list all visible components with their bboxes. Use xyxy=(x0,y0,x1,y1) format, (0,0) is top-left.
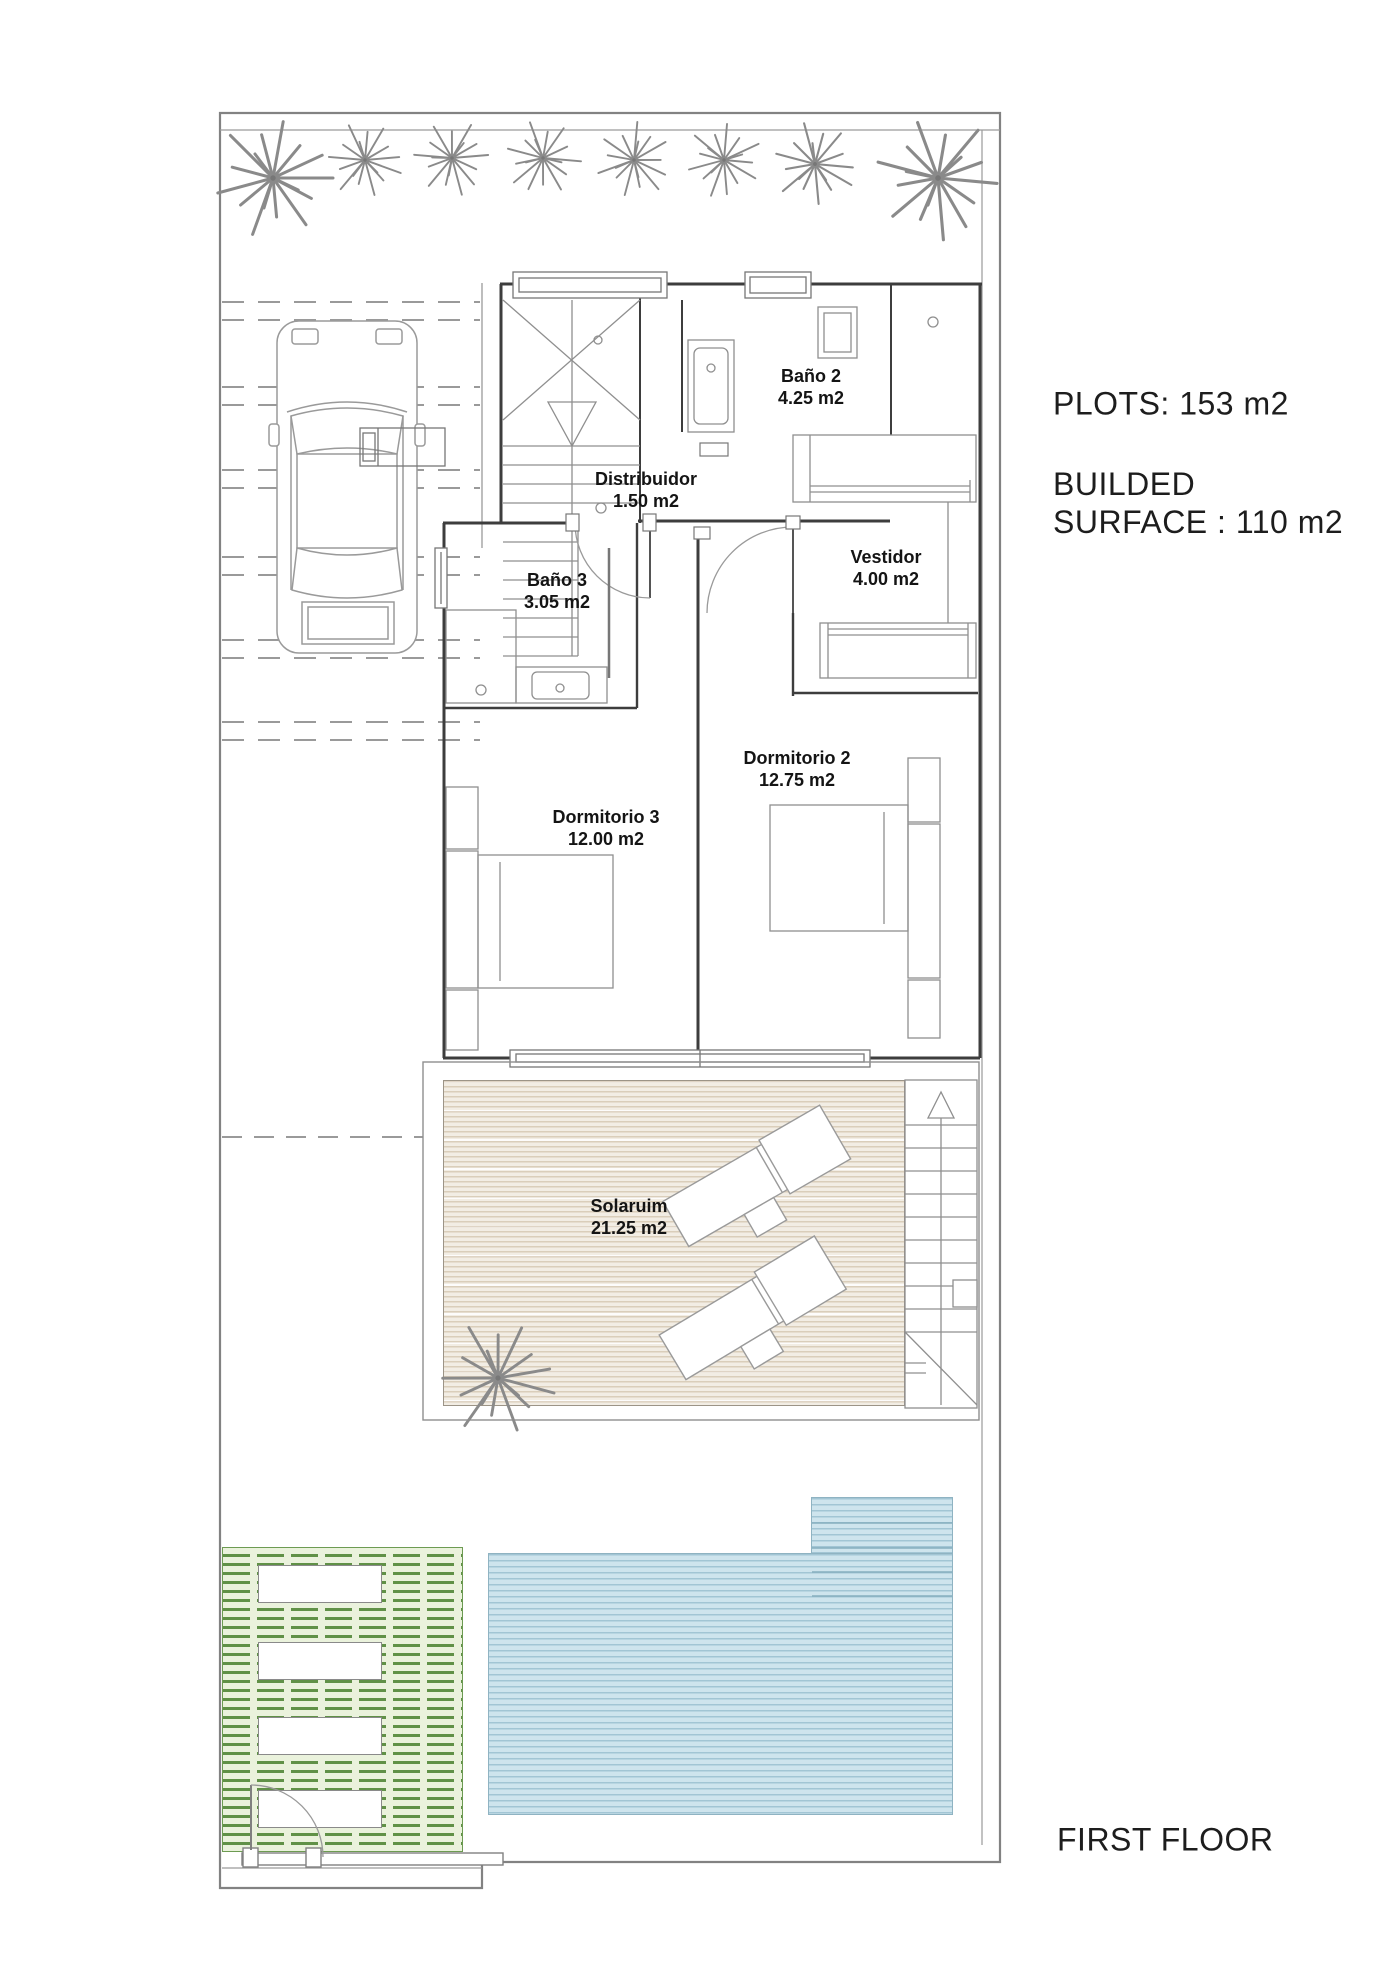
tree-icon xyxy=(491,108,593,210)
room-area: 4.00 m2 xyxy=(850,568,921,590)
room-name: Baño 3 xyxy=(524,569,590,591)
pool-steps xyxy=(812,1523,952,1596)
room-name: Solaruim xyxy=(590,1195,667,1217)
tree-icon xyxy=(408,115,496,204)
room-area: 1.50 m2 xyxy=(595,490,697,512)
garden-gate xyxy=(242,1785,503,1867)
floor-title: FIRST FLOOR xyxy=(1057,1822,1273,1859)
room-area: 12.00 m2 xyxy=(552,828,659,850)
room-name: Distribuidor xyxy=(595,468,697,490)
room-area: 21.25 m2 xyxy=(590,1217,667,1239)
solarium xyxy=(423,1062,979,1446)
plant-icon xyxy=(432,1312,568,1446)
room-label-solarium: Solaruim 21.25 m2 xyxy=(590,1195,667,1239)
trees-row xyxy=(218,108,1002,245)
car-icon xyxy=(269,321,425,653)
plots-label: PLOTS: 153 m2 xyxy=(1053,386,1289,423)
tree-icon xyxy=(762,110,871,219)
tree-icon xyxy=(218,122,333,235)
exterior-staircase xyxy=(905,1080,977,1408)
room-area: 12.75 m2 xyxy=(743,769,850,791)
room-name: Vestidor xyxy=(850,546,921,568)
room-area: 3.05 m2 xyxy=(524,591,590,613)
room-label-distribuidor: Distribuidor 1.50 m2 xyxy=(595,468,697,512)
builded-label-line1: BUILDED xyxy=(1053,465,1195,503)
tree-icon xyxy=(677,115,769,208)
builded-label-line2: SURFACE : 110 m2 xyxy=(1053,503,1343,541)
building-walls xyxy=(443,284,982,1058)
plan-linework xyxy=(0,0,1400,1982)
room-name: Dormitorio 3 xyxy=(552,806,659,828)
room-label-vestidor: Vestidor 4.00 m2 xyxy=(850,546,921,590)
room-label-dormitorio2: Dormitorio 2 12.75 m2 xyxy=(743,747,850,791)
floor-plan-canvas: Baño 2 4.25 m2 Distribuidor 1.50 m2 Vest… xyxy=(0,0,1400,1982)
room-label-bano2: Baño 2 4.25 m2 xyxy=(778,365,844,409)
tree-icon xyxy=(584,110,686,212)
tree-icon xyxy=(320,114,413,206)
room-label-dormitorio3: Dormitorio 3 12.00 m2 xyxy=(552,806,659,850)
bedroom2-furniture xyxy=(770,758,940,1038)
sun-lounger xyxy=(657,1236,857,1402)
room-name: Baño 2 xyxy=(778,365,844,387)
room-area: 4.25 m2 xyxy=(778,387,844,409)
sun-lounger xyxy=(660,1105,861,1269)
room-label-bano3: Baño 3 3.05 m2 xyxy=(524,569,590,613)
room-name: Dormitorio 2 xyxy=(743,747,850,769)
